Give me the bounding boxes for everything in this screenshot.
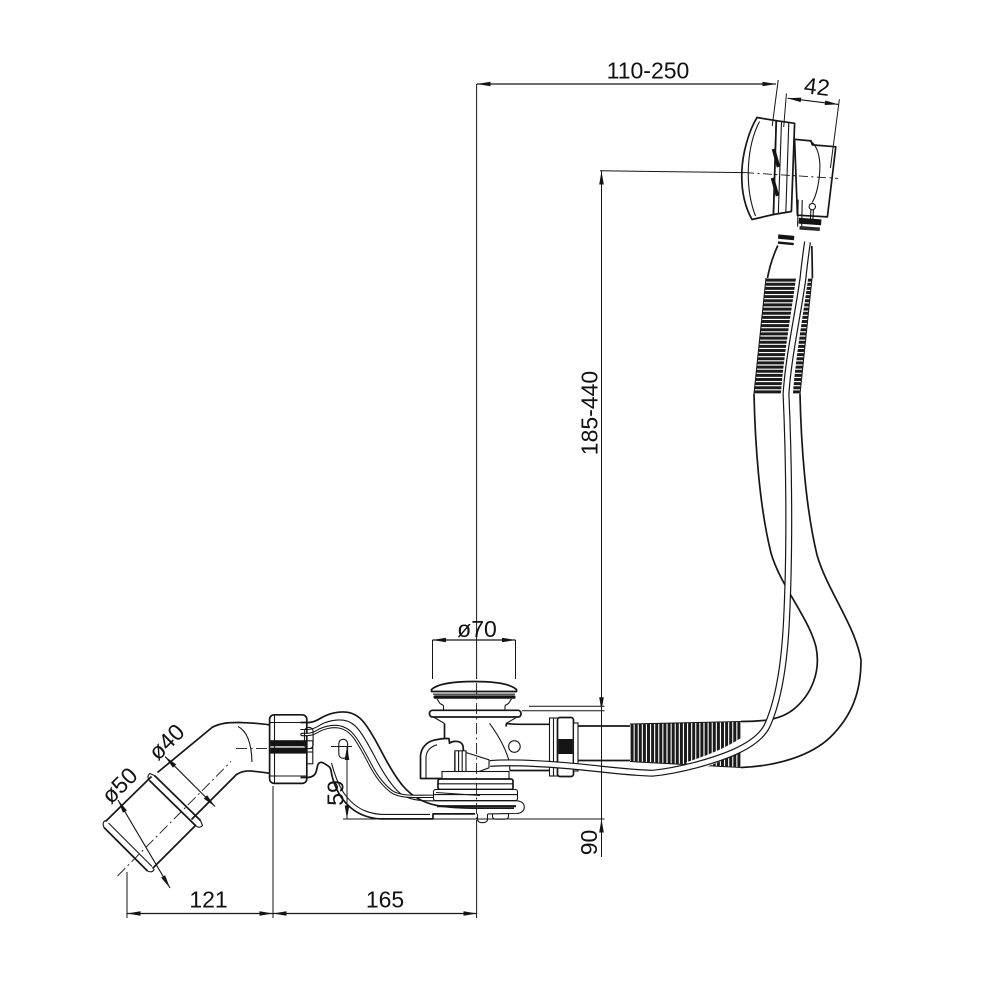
svg-text:ø70: ø70: [457, 616, 497, 642]
svg-text:59: 59: [323, 780, 349, 806]
svg-text:165: 165: [366, 887, 404, 913]
svg-text:90: 90: [576, 830, 602, 856]
svg-text:121: 121: [189, 887, 227, 913]
svg-text:110-250: 110-250: [607, 58, 690, 84]
svg-text:42: 42: [803, 72, 832, 101]
svg-text:185-440: 185-440: [577, 371, 603, 455]
